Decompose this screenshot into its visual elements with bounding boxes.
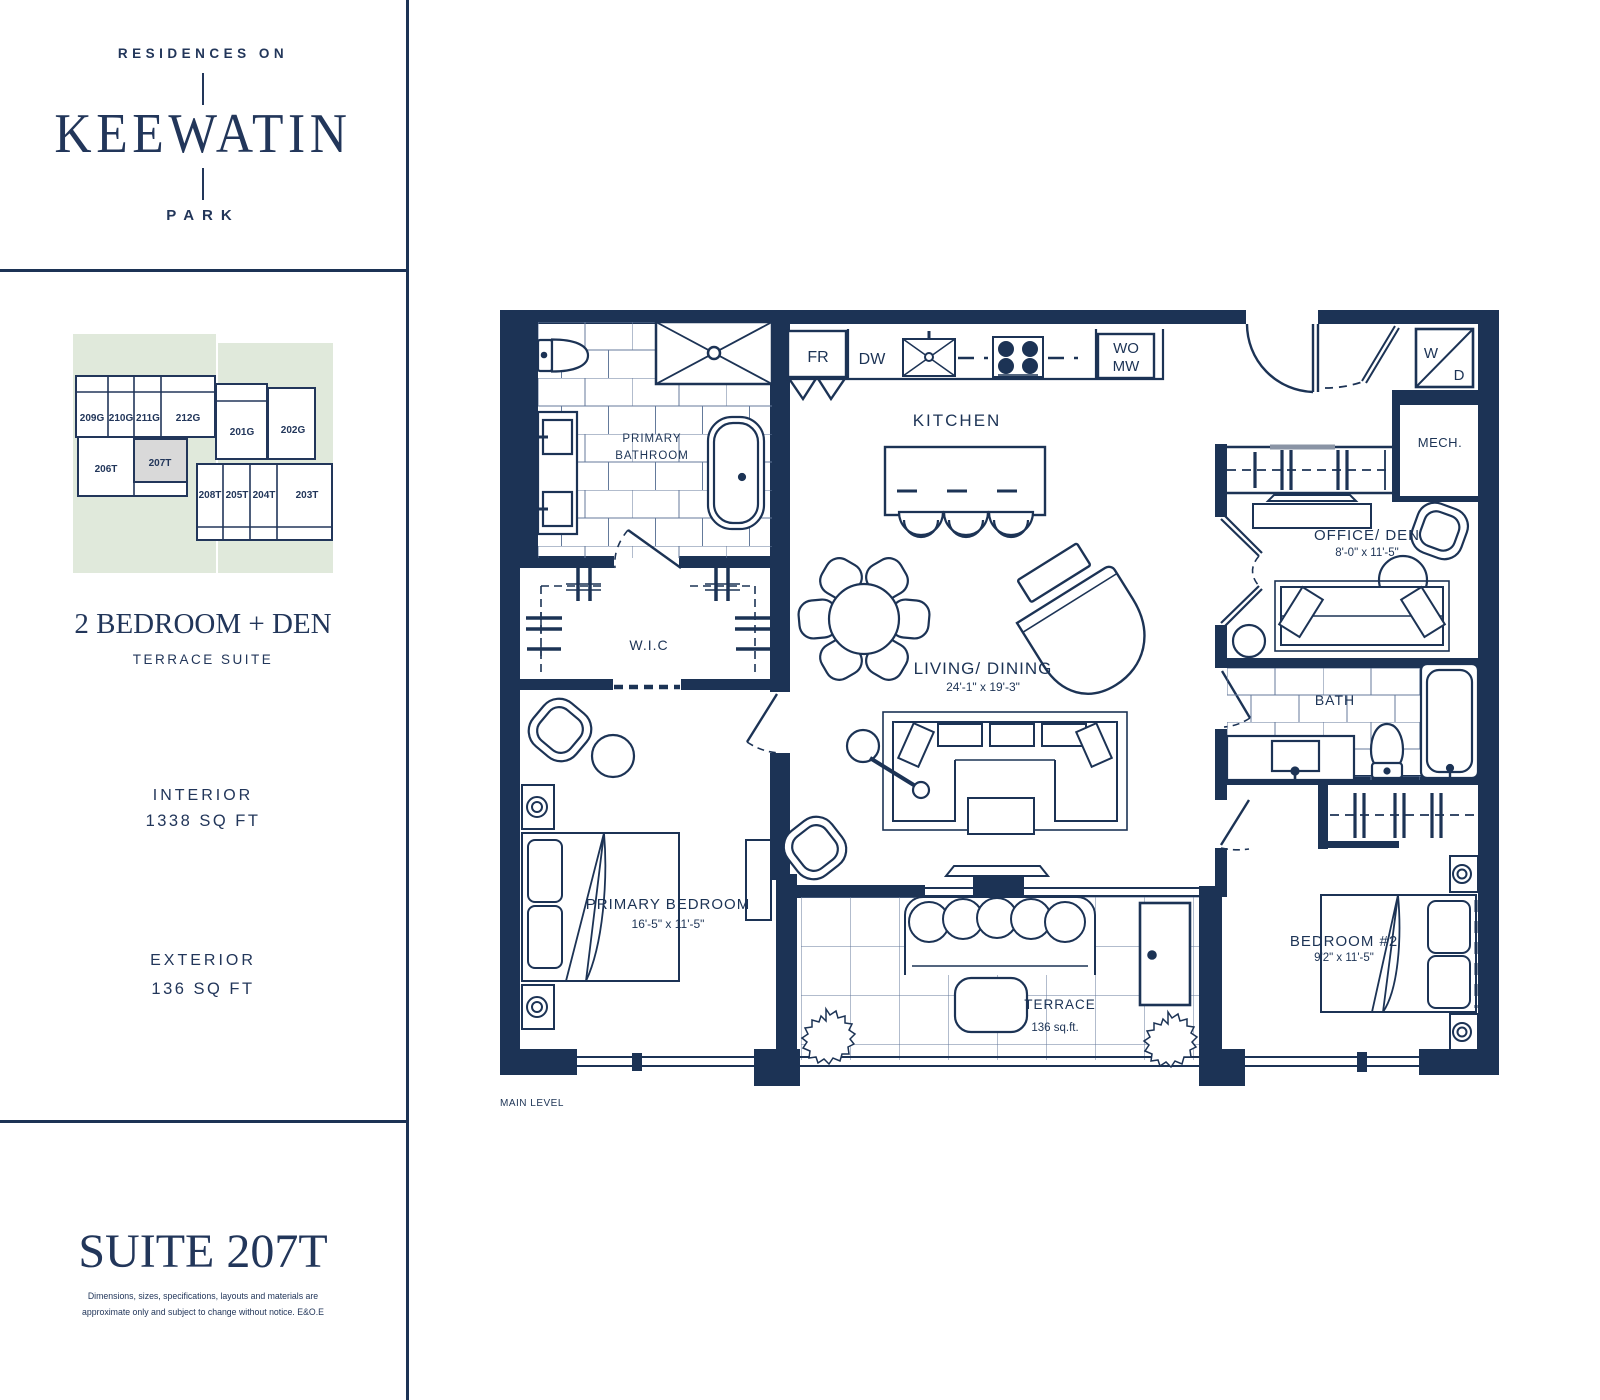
svg-text:205T: 205T xyxy=(226,490,249,501)
svg-text:OFFICE/ DEN: OFFICE/ DEN xyxy=(1314,527,1420,544)
svg-text:211G: 211G xyxy=(136,413,160,424)
svg-text:W.I.C: W.I.C xyxy=(629,637,668,653)
svg-text:PRIMARY BEDROOM: PRIMARY BEDROOM xyxy=(586,896,750,913)
svg-text:202G: 202G xyxy=(281,425,306,436)
svg-text:DW: DW xyxy=(859,351,887,368)
svg-text:KITCHEN: KITCHEN xyxy=(913,411,1002,430)
svg-text:208T: 208T xyxy=(199,490,222,501)
svg-text:MECH.: MECH. xyxy=(1418,435,1462,450)
svg-text:203T: 203T xyxy=(296,490,319,501)
svg-text:209G: 209G xyxy=(80,413,105,424)
svg-text:D: D xyxy=(1454,367,1465,384)
svg-text:204T: 204T xyxy=(253,490,276,501)
svg-text:210G: 210G xyxy=(109,413,134,424)
svg-text:BATHROOM: BATHROOM xyxy=(615,450,689,462)
svg-text:BEDROOM #2: BEDROOM #2 xyxy=(1290,933,1398,950)
svg-text:MAIN LEVEL: MAIN LEVEL xyxy=(500,1098,564,1109)
svg-text:207T: 207T xyxy=(149,458,172,469)
svg-text:TERRACE: TERRACE xyxy=(1024,997,1096,1012)
svg-text:FR: FR xyxy=(807,349,828,366)
svg-text:206T: 206T xyxy=(95,464,118,475)
svg-text:MW: MW xyxy=(1113,358,1140,375)
svg-text:BATH: BATH xyxy=(1315,692,1355,708)
svg-text:201G: 201G xyxy=(230,427,255,438)
svg-text:9'2" x 11'-5": 9'2" x 11'-5" xyxy=(1314,952,1374,964)
svg-text:16'-5" x 11'-5": 16'-5" x 11'-5" xyxy=(632,917,705,931)
svg-text:212G: 212G xyxy=(176,413,201,424)
svg-text:W: W xyxy=(1424,345,1439,362)
svg-text:8'-0" x 11'-5": 8'-0" x 11'-5" xyxy=(1335,547,1398,559)
svg-text:LIVING/ DINING: LIVING/ DINING xyxy=(914,659,1053,678)
svg-text:WO: WO xyxy=(1113,340,1139,357)
svg-text:24'-1" x 19'-3": 24'-1" x 19'-3" xyxy=(946,680,1020,694)
svg-text:PRIMARY: PRIMARY xyxy=(622,433,681,445)
svg-text:136 sq.ft.: 136 sq.ft. xyxy=(1031,1022,1078,1034)
